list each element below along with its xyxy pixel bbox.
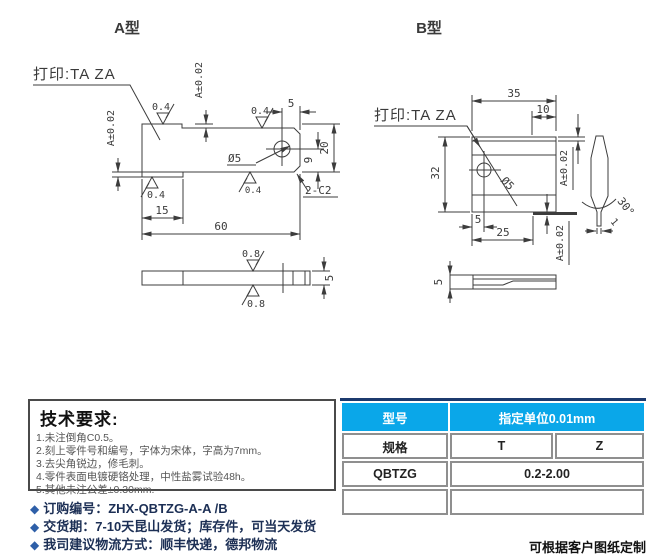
tech-requirements-list: 1.未注倒角C0.5。 2.刻上零件号和编号，字体为宋体，字高为7mm。 3.去… <box>30 432 334 497</box>
customization-note: 可根据客户图纸定制 <box>529 537 646 556</box>
a-dim-hole-edge: 5 <box>288 97 295 110</box>
order-note-line: ◆我司建议物流方式：顺丰快递，德邦物流 <box>30 536 316 554</box>
b-dim-thickness: 5 <box>432 279 445 286</box>
b-dim-hole-offset: 5 <box>475 213 482 226</box>
b-title: B型 <box>416 19 442 37</box>
spec-empty-cell <box>342 489 448 515</box>
b-blade-profile: 30° 1 <box>582 136 637 234</box>
tech-item: 3.去尖角锐边，修毛刺。 <box>36 458 330 471</box>
spec-label-cell: 规格 <box>342 433 448 459</box>
a-dim-hole-bottom: 9 <box>302 157 315 164</box>
a-dim-height: 20 <box>318 141 331 154</box>
a-print-leader <box>33 85 160 140</box>
a-dim-thickness: 5 <box>323 275 336 282</box>
b-tol-edge-label: A±0.02 <box>555 225 566 261</box>
a-part-outline <box>142 124 300 177</box>
a-rough-label-4: 0.4 <box>245 186 261 196</box>
spec-col-t: T <box>450 433 553 459</box>
order-note-text: 订购编号：ZHX-QBTZG-A-A /B <box>43 501 227 516</box>
a-print-label: 打印:TA ZA <box>33 66 116 83</box>
a-rough08-bottom: 0.8 <box>247 299 265 310</box>
a-side-view: 0.8 0.8 5 <box>142 249 336 310</box>
tech-requirements-box: 技术要求: 1.未注倒角C0.5。 2.刻上零件号和编号，字体为宋体，字高为7m… <box>28 399 336 491</box>
b-print-label: 打印:TA ZA <box>374 107 457 124</box>
diamond-bullet-icon: ◆ <box>30 520 39 534</box>
spec-empty-cell <box>450 489 644 515</box>
spec-model-value: QBTZG <box>342 461 448 487</box>
a-rough-label-2: 0.4 <box>251 106 269 117</box>
b-angle-label: 30° <box>615 195 637 219</box>
b-tol-top-label: A±0.02 <box>559 150 570 186</box>
order-note-text: 交货期：7-10天昆山发货；库存件，可当天发货 <box>43 519 316 534</box>
order-note-line: ◆订购编号：ZHX-QBTZG-A-A /B <box>30 500 316 518</box>
b-side-view: 5 <box>432 261 556 303</box>
technical-drawing: A型 打印:TA ZA 5 20 <box>0 0 655 395</box>
diamond-bullet-icon: ◆ <box>30 502 39 516</box>
a-chamfer-label: 2-C2 <box>305 184 332 197</box>
a-rough08-top: 0.8 <box>242 249 260 260</box>
diamond-bullet-icon: ◆ <box>30 538 39 552</box>
spec-table: 型号 指定单位0.01mm 规格 T Z QBTZG 0.2-2.00 <box>340 398 646 517</box>
a-tol-left-label: A±0.02 <box>106 110 117 146</box>
a-rough-label-3: 0.4 <box>147 190 165 201</box>
order-note-text: 我司建议物流方式：顺丰快递，德邦物流 <box>43 537 277 552</box>
b-dim-hole-span: 25 <box>496 226 509 239</box>
spec-col-z: Z <box>555 433 644 459</box>
b-dim-edge-width: 10 <box>536 103 549 116</box>
tech-requirements-title: 技术要求: <box>40 405 334 430</box>
a-title: A型 <box>114 19 140 37</box>
spec-range-value: 0.2-2.00 <box>450 461 644 487</box>
a-tol-top-label: A±0.02 <box>194 62 205 98</box>
a-view: A型 打印:TA ZA 5 20 <box>33 19 340 310</box>
tech-item: 4.零件表面电镀硬铬处理，中性盐雾试验48h。 <box>36 471 330 484</box>
b-dim-height: 32 <box>429 166 442 179</box>
spec-header-model: 型号 <box>342 403 448 431</box>
a-roughness-symbols: 0.4 0.4 0.4 0.4 <box>141 102 273 201</box>
order-note-line: ◆交货期：7-10天昆山发货；库存件，可当天发货 <box>30 518 316 536</box>
drawing-page: A型 打印:TA ZA 5 20 <box>0 0 655 558</box>
order-notes: ◆订购编号：ZHX-QBTZG-A-A /B ◆交货期：7-10天昆山发货；库存… <box>30 500 316 554</box>
tech-item: 5.其他未注公差±0.30mm. <box>36 484 330 497</box>
tech-item: 2.刻上零件号和编号，字体为宋体，字高为7mm。 <box>36 445 330 458</box>
spec-header-unit: 指定单位0.01mm <box>450 403 644 431</box>
a-rough-label-1: 0.4 <box>152 102 170 113</box>
b-dim-width: 35 <box>507 87 520 100</box>
b-hole-dia-label: Ø5 <box>498 174 517 193</box>
a-dim-tab: 15 <box>155 204 168 217</box>
b-view: B型 打印:TA ZA Ø5 35 10 <box>374 19 637 303</box>
a-dim-length: 60 <box>214 220 227 233</box>
tech-item: 1.未注倒角C0.5。 <box>36 432 330 445</box>
a-hole-dia-label: Ø5 <box>228 152 241 165</box>
b-tip-width-label: 1 <box>608 217 620 229</box>
